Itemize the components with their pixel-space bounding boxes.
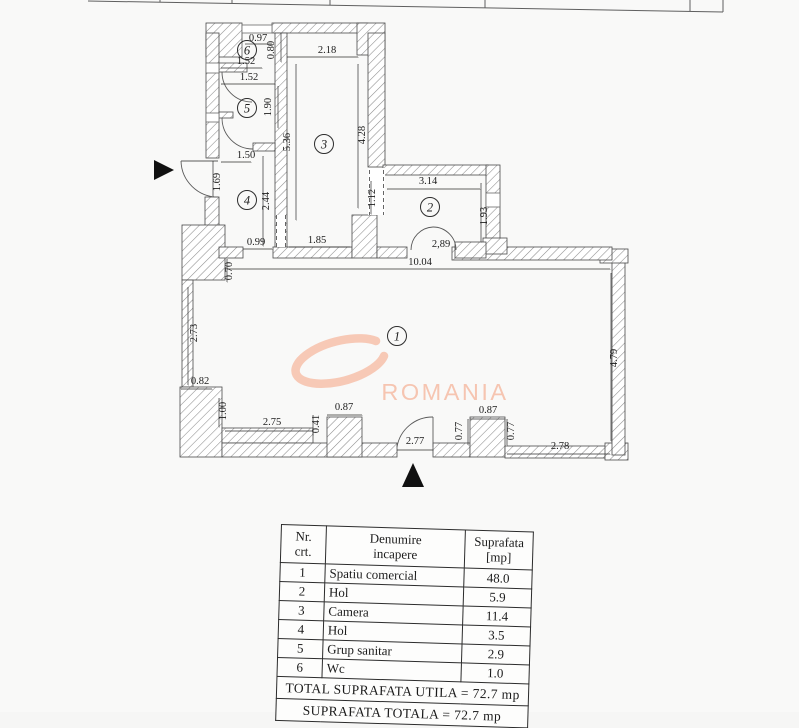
- dimension-label: 1.85: [308, 235, 326, 246]
- dimension-label: 0.87: [479, 405, 497, 416]
- dimension-label: 1.93: [479, 207, 490, 225]
- room-number: 4: [244, 194, 250, 208]
- wall-segment: [182, 225, 225, 280]
- wall-segment: [470, 417, 505, 457]
- wall-segment: [483, 238, 507, 254]
- dimension-label: 1.69: [212, 173, 223, 191]
- wall-segment: [383, 165, 488, 175]
- dimension-label: 1.90: [263, 98, 274, 116]
- watermark-swoosh-icon: [296, 338, 384, 383]
- entrance-arrow-bottom-icon: [402, 463, 424, 487]
- dimension-label: 5.36: [282, 133, 293, 151]
- dimension-label: 0.87: [335, 402, 353, 413]
- wall-segment: [253, 143, 275, 151]
- dimension-label: 2.77: [406, 436, 424, 447]
- dimension-label: 1.12: [367, 189, 378, 207]
- dimension-label: 0.41: [311, 415, 322, 433]
- window: [206, 63, 219, 73]
- dimension-label: 1.50: [237, 150, 255, 161]
- wall-segment: [180, 387, 222, 457]
- area-table-cell-area: 48.0: [464, 568, 532, 589]
- room-number: 5: [244, 102, 250, 116]
- wall-segment: [433, 443, 470, 457]
- entrance-arrow-left-icon: [154, 160, 174, 180]
- dimension-label: 0.80: [266, 41, 277, 59]
- area-table-cell-area: 1.0: [461, 663, 529, 684]
- dimension-label: 2,89: [432, 239, 450, 250]
- wall-segment: [219, 112, 233, 118]
- wall-segment: [327, 417, 362, 457]
- area-table: Nr. crt. Denumire incapere Suprafata [mp…: [275, 524, 534, 728]
- area-table-cell-area: 2.9: [462, 644, 530, 665]
- watermark: ROMANIA: [296, 338, 509, 405]
- area-table-cell-area: 5.9: [463, 587, 531, 608]
- wall-segment: [368, 33, 385, 167]
- wall-segment: [272, 23, 368, 33]
- wall-segment: [222, 443, 397, 457]
- area-table-cell-nr: 1: [280, 562, 326, 582]
- dimension-label: 0.70: [224, 262, 235, 280]
- room-number: 1: [394, 330, 400, 344]
- wall-segment: [205, 197, 219, 228]
- door-arc: [411, 227, 433, 250]
- area-table-cell-area: 3.5: [462, 625, 530, 646]
- scanned-page: ROMANIA: [0, 0, 799, 712]
- header-suprafata: Suprafata [mp]: [465, 530, 534, 570]
- area-table-cell-nr: 2: [279, 581, 325, 601]
- wall-segment: [206, 33, 219, 158]
- wall-segment: [219, 247, 243, 258]
- cutoff-table-fragment: [88, 0, 723, 12]
- dimension-label: 4.28: [357, 126, 368, 144]
- dimension-label: 0.82: [191, 376, 209, 387]
- area-table-cell-area: 11.4: [463, 606, 531, 627]
- dimension-label: 2.18: [318, 45, 336, 56]
- dimension-label: 4.79: [609, 349, 620, 367]
- room-number: 3: [320, 138, 327, 152]
- dimension-label: 2.44: [261, 191, 272, 210]
- dimension-label: 3.14: [419, 176, 438, 187]
- window: [242, 25, 272, 33]
- watermark-text: ROMANIA: [381, 379, 508, 405]
- room-number: 2: [427, 201, 433, 215]
- area-table-cell-nr: 3: [279, 600, 325, 620]
- dimension-label: 0.99: [247, 237, 265, 248]
- wall-segment: [377, 247, 407, 258]
- dimension-label: 2.75: [263, 417, 281, 428]
- dimension-label: 10.04: [408, 257, 432, 268]
- wall-segment: [222, 428, 313, 443]
- door-arc: [222, 118, 253, 149]
- wall-segment: [455, 242, 486, 258]
- window: [206, 113, 219, 122]
- dimension-label: 2.73: [189, 324, 200, 342]
- dimension-label: 0.77: [506, 422, 517, 440]
- wall-segment: [352, 215, 377, 258]
- header-nr-crt: Nr. crt.: [280, 525, 326, 564]
- area-table-cell-nr: 5: [278, 638, 324, 658]
- dimension-label: 2.78: [551, 441, 569, 452]
- dimension-label: 0.77: [454, 422, 465, 440]
- dimension-label: 1.00: [218, 402, 229, 420]
- dashed-opening: [276, 215, 286, 247]
- room-number: 6: [244, 44, 251, 58]
- dimension-label: 1.52: [240, 72, 258, 83]
- area-table-cell-nr: 4: [278, 619, 324, 639]
- header-denumire: Denumire incapere: [325, 526, 465, 568]
- wall-segment: [273, 247, 352, 258]
- area-table-cell-nr: 6: [277, 657, 323, 677]
- window: [486, 193, 500, 207]
